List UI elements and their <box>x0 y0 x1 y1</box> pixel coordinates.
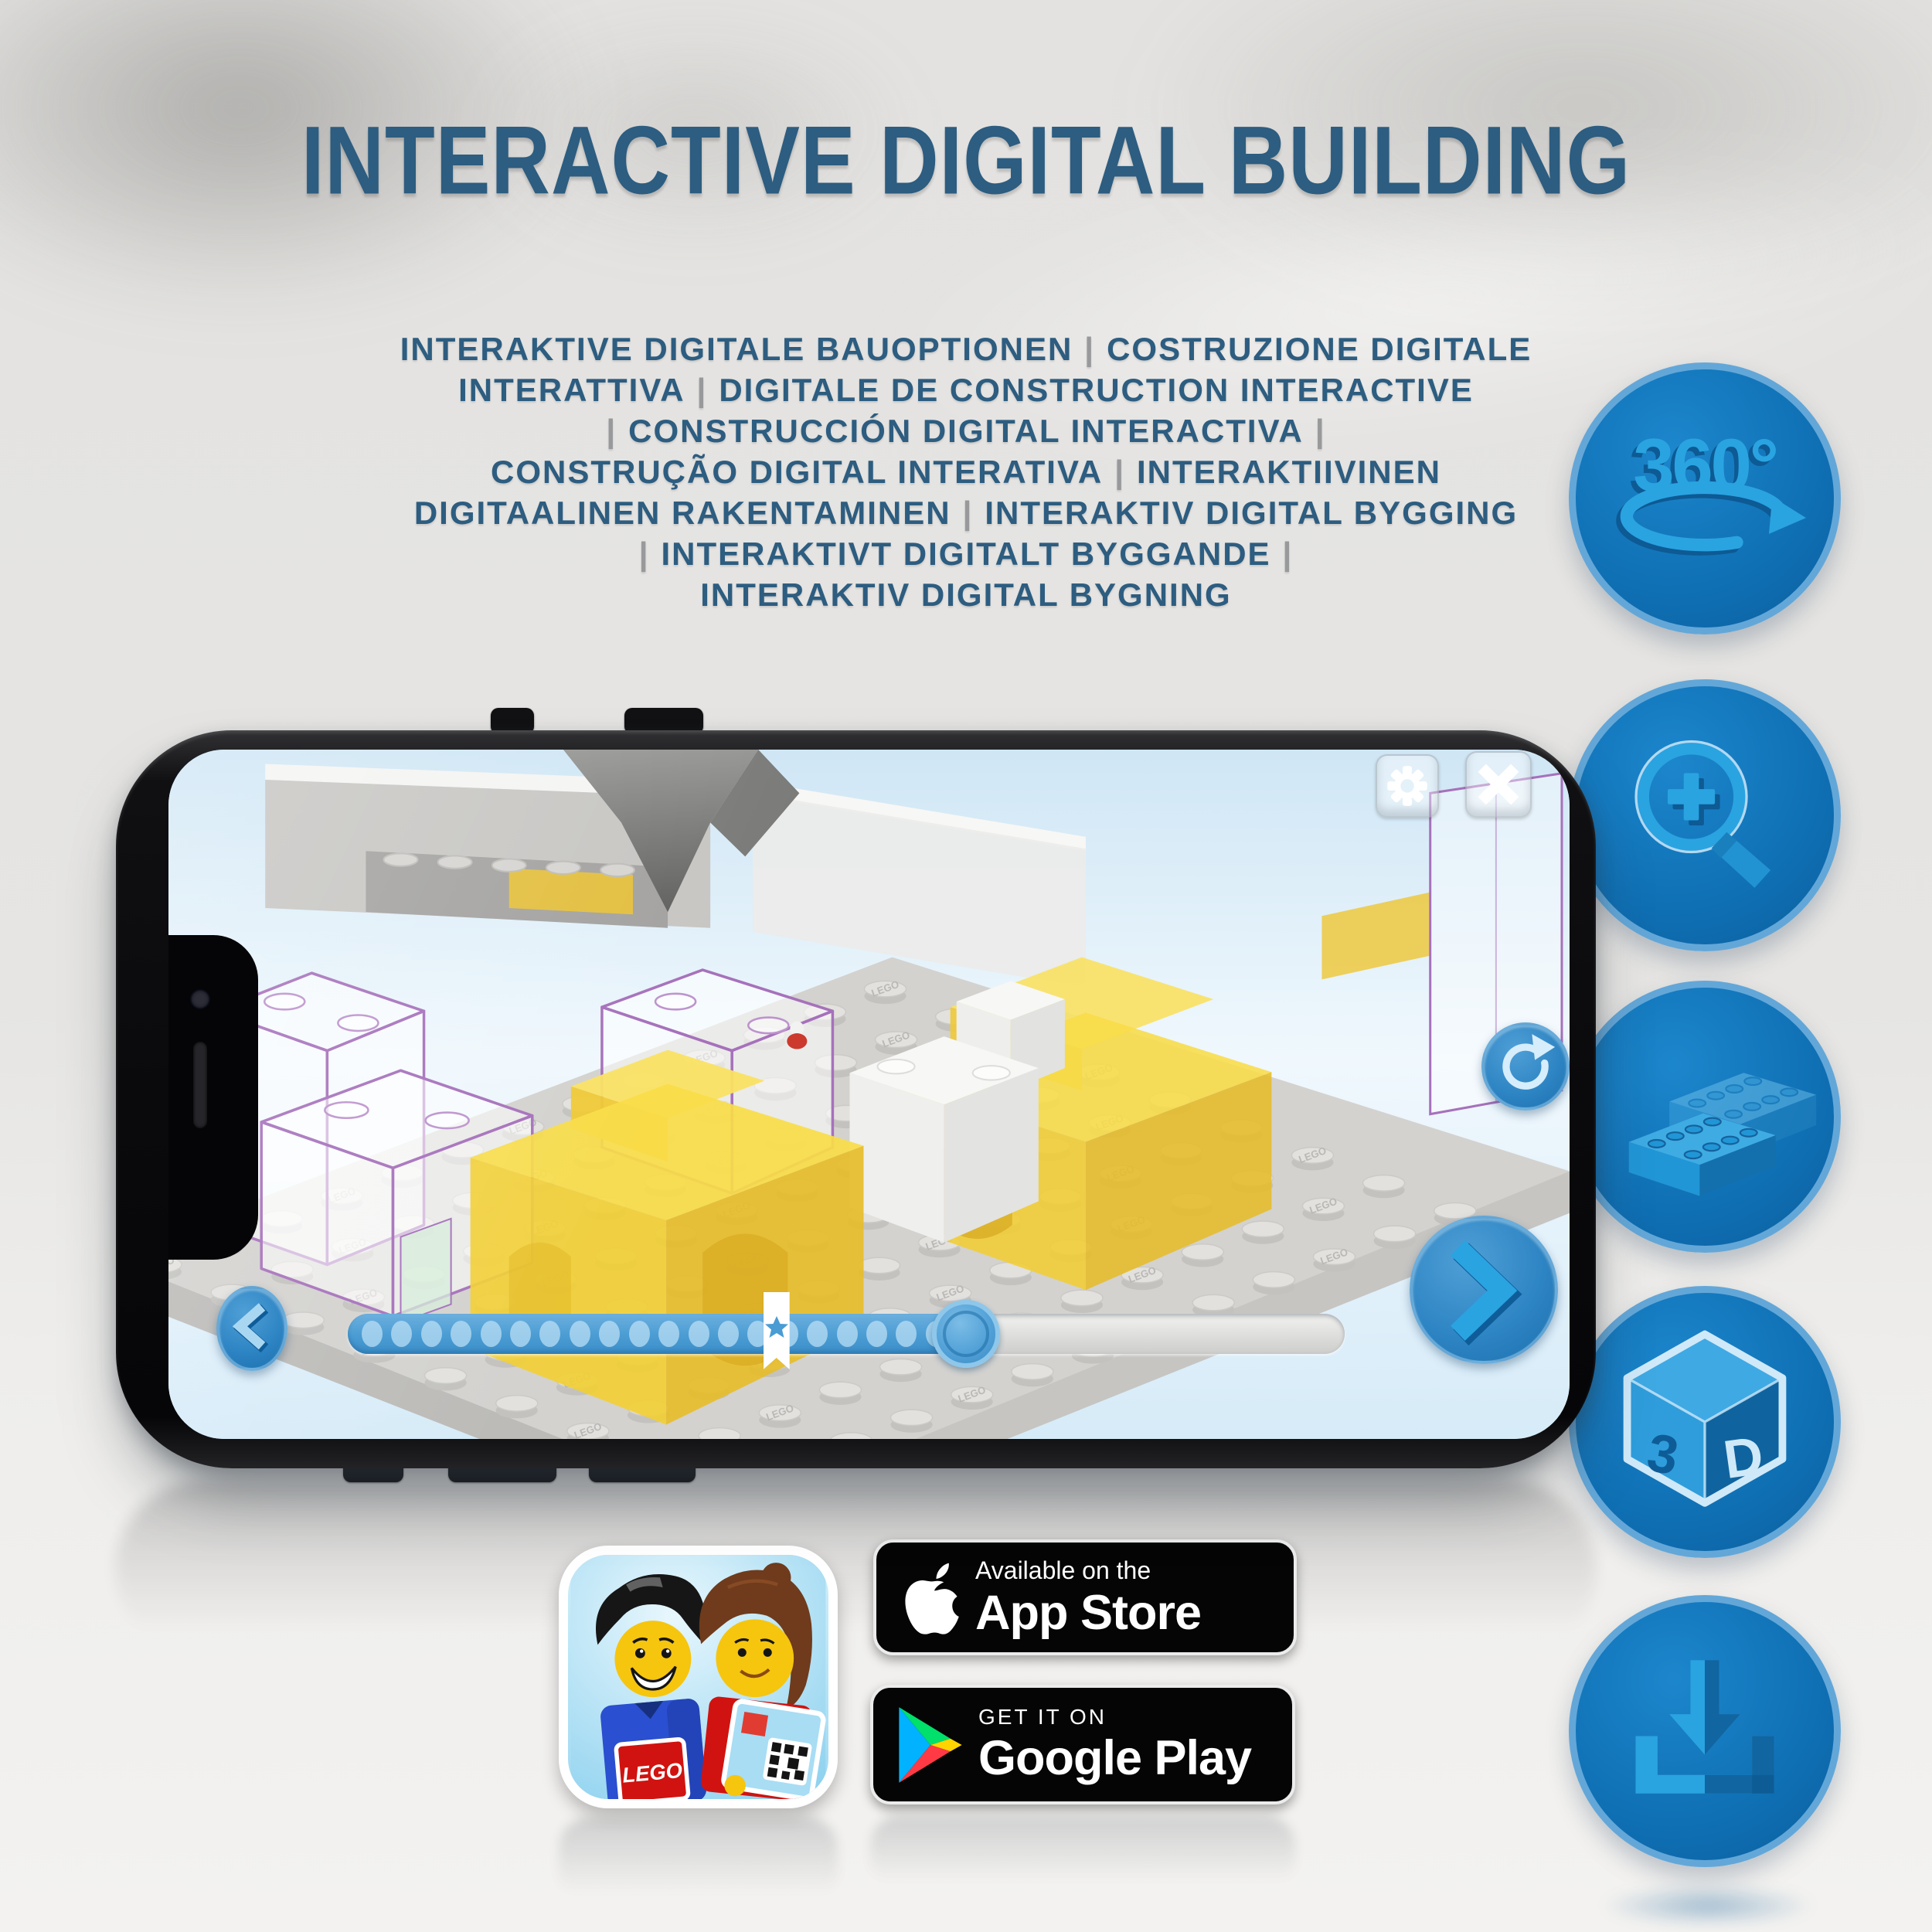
earpiece-speaker-icon <box>193 1042 207 1128</box>
plate-stud <box>858 1257 900 1274</box>
plate-stud <box>880 1359 922 1375</box>
plate-stud <box>1061 1290 1103 1306</box>
star-bookmark-icon <box>764 1292 790 1369</box>
chevron-left-icon <box>219 1286 284 1371</box>
google-play-tagline: GET IT ON <box>978 1706 1251 1728</box>
plate-stud <box>1012 1364 1053 1380</box>
bookmark-marker <box>764 1292 790 1369</box>
google-play-logo-icon <box>893 1704 968 1786</box>
rotate-360-icon: 360° 360° <box>1604 397 1806 600</box>
zoom-in-icon <box>1604 714 1806 917</box>
slider-step-dot <box>421 1321 442 1347</box>
google-play-name: Google Play <box>978 1734 1251 1783</box>
download-icon <box>1604 1630 1806 1832</box>
slider-step-dot <box>362 1321 383 1347</box>
slider-step-dot <box>510 1321 531 1347</box>
phone-reflection <box>116 1480 1596 1658</box>
next-step-button[interactable] <box>1410 1216 1558 1364</box>
feature-badge-download <box>1569 1595 1841 1867</box>
progress-slider-thumb[interactable] <box>932 1300 1000 1368</box>
settings-button[interactable] <box>1376 754 1439 818</box>
feature-badge-3d: 3 D <box>1569 1286 1841 1558</box>
plate-stud <box>1374 1226 1416 1242</box>
plate-stud <box>1363 1175 1405 1192</box>
plate-stud <box>1182 1244 1223 1260</box>
app-store-name: App Store <box>975 1589 1201 1638</box>
plate-stud <box>819 1382 861 1398</box>
slider-step-dot <box>718 1321 739 1347</box>
feature-badge-zoom <box>1569 679 1841 951</box>
slider-step-dot <box>807 1321 828 1347</box>
plate-stud <box>282 1312 324 1328</box>
plate-stud <box>1242 1221 1284 1237</box>
close-icon <box>1473 759 1524 810</box>
plate-stud <box>496 1396 538 1412</box>
badge-reflection <box>870 1815 1295 1889</box>
slider-step-dot <box>658 1321 679 1347</box>
download-badge-reflection <box>1600 1884 1816 1927</box>
lego-app-icon[interactable]: LEGO <box>559 1546 838 1808</box>
plate-stud <box>891 1410 933 1426</box>
gear-icon <box>1383 762 1431 810</box>
progress-slider-track[interactable] <box>348 1314 1345 1354</box>
slider-step-dot <box>837 1321 858 1347</box>
slider-step-dot <box>629 1321 650 1347</box>
front-camera-icon <box>192 991 209 1008</box>
3d-cube-icon: 3 D <box>1604 1321 1806 1523</box>
rotate-reset-icon <box>1485 1022 1566 1111</box>
subtitle-line: INTERAKTIVE DIGITALE BAUOPTIONEN|COSTRUZ… <box>0 328 1932 369</box>
app-store-tagline: Available on the <box>975 1558 1201 1583</box>
close-button[interactable] <box>1465 751 1532 818</box>
lego-minifigures-art: LEGO <box>568 1555 828 1799</box>
slider-step-dot <box>689 1321 709 1347</box>
lego-app-reflection <box>559 1818 838 1903</box>
slider-step-dot <box>481 1321 502 1347</box>
plate-stud <box>699 1428 740 1439</box>
google-play-badge[interactable]: GET IT ON Google Play <box>870 1685 1295 1804</box>
svg-text:D: D <box>1720 1425 1767 1490</box>
feature-badge-360: 360° 360° <box>1569 362 1841 634</box>
app-store-badge[interactable]: Available on the App Store <box>873 1539 1297 1655</box>
phone-screen: LEGOLEGOLEGOLEGOLEGOLEGOLEGOLEGOLEGOLEGO… <box>168 750 1570 1439</box>
marketing-page: INTERACTIVE DIGITAL BUILDING INTERAKTIVE… <box>0 0 1932 1932</box>
plate-stud <box>1253 1272 1294 1288</box>
previous-step-button[interactable] <box>216 1286 287 1371</box>
slider-step-dot <box>866 1321 887 1347</box>
slider-step-dot <box>570 1321 590 1347</box>
apple-logo-icon <box>898 1557 964 1638</box>
page-title: INTERACTIVE DIGITAL BUILDING <box>0 106 1932 216</box>
feature-badge-brick <box>1569 981 1841 1253</box>
plate-stud <box>1192 1294 1234 1311</box>
phone-notch <box>168 935 258 1260</box>
building-brick-icon <box>1604 1015 1806 1218</box>
rotate-view-button[interactable] <box>1481 1022 1570 1111</box>
chevron-right-icon <box>1413 1216 1555 1364</box>
plate-stud <box>425 1368 467 1384</box>
